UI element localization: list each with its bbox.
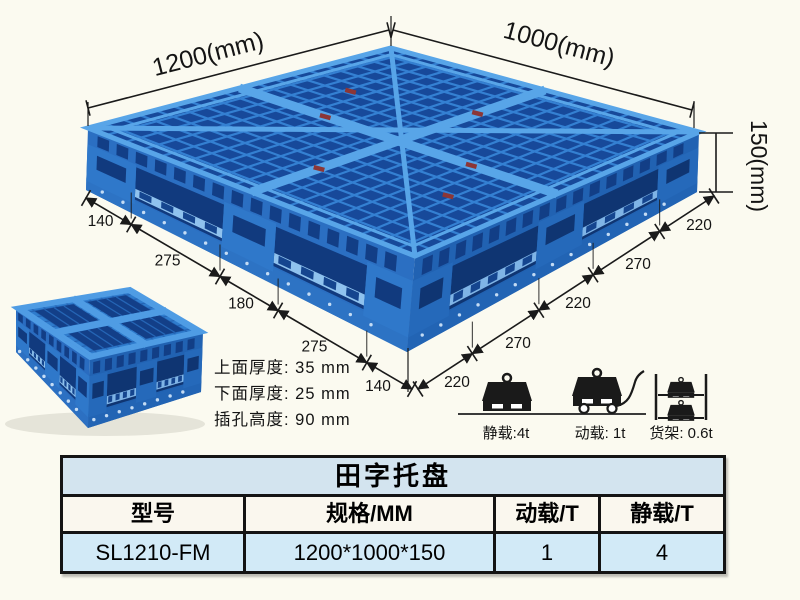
header-spec: 规格/MM (246, 497, 496, 531)
note-fork-height: 插孔高度: 90 mm (214, 410, 351, 429)
pallet-spec-sheet: 1200(mm) 1000(mm) 150(mm) 140 275 180 27… (0, 0, 800, 600)
dim-label-left-2: 180 (228, 296, 254, 313)
rack-shelf-load-icon (656, 374, 706, 421)
dynamic-load-label: 动载: 1t (575, 425, 627, 442)
dim-label-height: 150(mm) (746, 120, 772, 212)
dim-label-left-0: 140 (88, 213, 114, 230)
header-model: 型号 (63, 497, 246, 531)
static-load-label: 静载:4t (483, 425, 531, 442)
dynamic-load-trolley-icon (572, 369, 644, 413)
dim-label-right-1: 270 (505, 335, 531, 352)
dim-label-top-width: 1200(mm) (149, 26, 266, 82)
dim-label-right-4: 220 (686, 217, 712, 234)
dim-label-right-0: 220 (444, 374, 470, 391)
dim-label-left-1: 275 (155, 253, 181, 270)
cell-spec: 1200*1000*150 (246, 534, 496, 571)
spec-table-title: 田字托盘 (63, 458, 723, 497)
dim-label-left-3: 275 (301, 339, 327, 356)
small-pallet-photo (16, 289, 203, 428)
rack-load-label: 货架: 0.6t (649, 425, 713, 442)
dim-label-right-3: 270 (625, 256, 651, 273)
spec-table-header-row: 型号 规格/MM 动载/T 静载/T (63, 497, 723, 534)
header-dynamic-load: 动载/T (496, 497, 601, 531)
note-top-thickness: 上面厚度: 35 mm (214, 358, 351, 377)
static-load-weight-icon (482, 374, 532, 411)
dim-label-left-4: 140 (365, 378, 391, 395)
spec-table: 田字托盘 型号 规格/MM 动载/T 静载/T SL1210-FM 1200*1… (60, 455, 726, 574)
cell-model: SL1210-FM (63, 534, 246, 571)
cell-static-load: 4 (601, 534, 723, 571)
cell-dynamic-load: 1 (496, 534, 601, 571)
main-pallet-isometric-photo (86, 48, 699, 352)
dim-label-right-2: 220 (565, 295, 591, 312)
spec-table-data-row: SL1210-FM 1200*1000*150 1 4 (63, 534, 723, 571)
header-static-load: 静载/T (601, 497, 723, 531)
note-bottom-thickness: 下面厚度: 25 mm (214, 384, 351, 403)
thickness-notes: 上面厚度: 35 mm 下面厚度: 25 mm 插孔高度: 90 mm (214, 358, 351, 429)
load-rating-icons: 静载:4t 动载: 1t 货架: 0.6t (458, 369, 714, 442)
